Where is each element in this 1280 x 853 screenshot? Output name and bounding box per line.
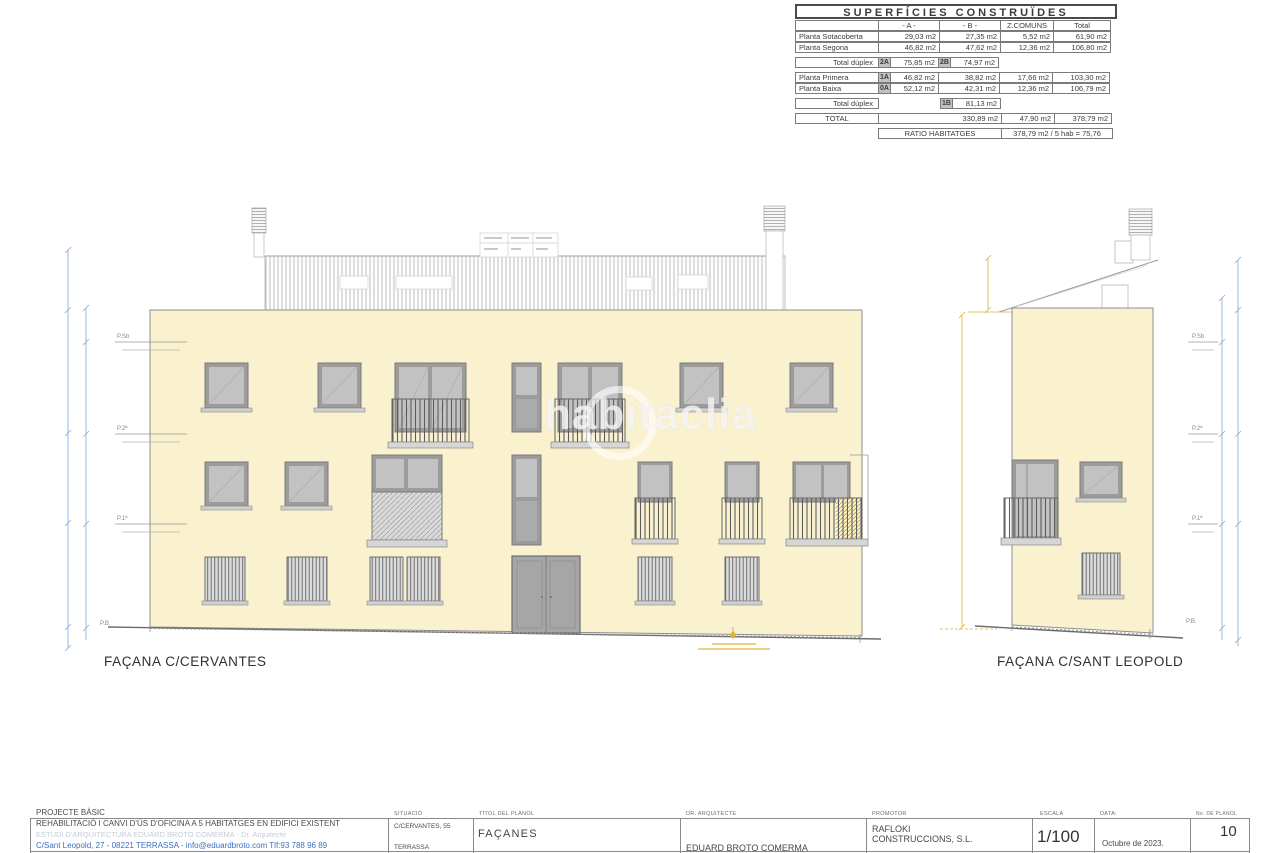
studio-line: ESTUDI D'ARQUITECTURA EDUARD BROTO COMER… — [36, 830, 286, 839]
entrance-door — [512, 556, 580, 633]
barred-window — [202, 557, 248, 605]
cell: Planta Sotacoberta — [795, 31, 879, 42]
cervantes-caption: FAÇANA C/CERVANTES — [104, 654, 267, 669]
table-row: RATIO HABITATGES 378,79 m2 / 5 hab = 75,… — [795, 128, 1117, 139]
cell: 47,62 m2 — [939, 42, 1001, 53]
cell: 103,30 m2 — [1052, 72, 1110, 83]
cell: - B - — [939, 20, 1001, 31]
balcony-door — [512, 363, 541, 432]
table-row: Planta Baixa 0A 52,12 m2 42,31 m2 12,36 … — [795, 83, 1117, 94]
escala-label: ESCALA — [1040, 811, 1064, 817]
surface-table-title: SUPERFÍCIES CONSTRUÏDES — [795, 4, 1117, 19]
table-row: Planta Segona 46,82 m2 47,62 m2 12,36 m2… — [795, 42, 1117, 53]
roof-step — [1115, 241, 1133, 263]
window — [1076, 462, 1126, 502]
cell: 38,82 m2 — [938, 72, 1000, 83]
dimension-lines-left — [65, 247, 89, 651]
level-markers-right: P.Sb P.2ª P.1ª P.B. — [1186, 334, 1218, 625]
cell: Total dúplex — [795, 98, 879, 109]
window-with-shutter — [367, 455, 447, 547]
cell: 330,89 m2 — [878, 113, 1002, 124]
balcony-window — [632, 462, 678, 544]
level-label: P.1ª — [117, 515, 128, 522]
contact-line: C/Sant Leopold, 27 - 08221 TERRASSA - in… — [36, 841, 327, 850]
cell: 29,03 m2 — [878, 31, 940, 42]
project-title: REHABILITACIÓ I CANVI D'ÚS D'OFICINA A 5… — [36, 819, 340, 828]
situacio-city: TERRASSA — [394, 844, 429, 851]
cell: 46,82 m2 — [878, 42, 940, 53]
balcony-door — [1001, 460, 1061, 545]
roof-legend-box — [480, 233, 558, 257]
cell: 42,31 m2 — [938, 83, 1000, 94]
surface-table: SUPERFÍCIES CONSTRUÏDES - A - - B - Z.CO… — [795, 4, 1117, 139]
balcony-window — [719, 462, 765, 544]
table-row: Total dúplex 2A 75,85 m2 2B 74,97 m2 — [795, 57, 1117, 68]
cell: Total dúplex — [795, 57, 879, 68]
promotor-value: RAFLOKI CONSTRUCCIONS, S.L. — [872, 824, 992, 844]
window — [201, 363, 252, 412]
level-label: P.1ª — [1192, 515, 1203, 522]
planol-label: No. DE PLÀNOL — [1196, 811, 1237, 817]
cell: 81,13 m2 — [952, 98, 1001, 109]
cell: 12,36 m2 — [1000, 42, 1054, 53]
cell: 378,79 m2 — [1054, 113, 1112, 124]
cell: TOTAL — [795, 113, 879, 124]
cell: 46,82 m2 — [890, 72, 939, 83]
cervantes-facade: P.Sb P.2ª P.1ª P.B. — [65, 206, 881, 651]
barred-window — [635, 557, 675, 605]
arquitecte-value: EDUARD BROTO COMERMA — [686, 843, 808, 853]
cell: Planta Baixa — [795, 83, 879, 94]
planol-value: 10 — [1220, 823, 1237, 840]
sant-leopold-caption: FAÇANA C/SANT LEOPOLD — [997, 654, 1183, 669]
window — [201, 462, 252, 510]
project-type: PROJECTE BÀSIC — [36, 808, 105, 817]
plan-sheet: P.Sb P.2ª P.1ª P.B. — [0, 0, 1280, 853]
table-row: Planta Primera 1A 46,82 m2 38,82 m2 17,6… — [795, 72, 1117, 83]
data-value: Octubre de 2023. — [1102, 839, 1164, 848]
window — [314, 363, 365, 412]
level-label: P.2ª — [1192, 425, 1203, 432]
spacer — [879, 98, 941, 109]
titol-value: FAÇANES — [478, 828, 538, 840]
level-label: P.B. — [100, 621, 111, 627]
level-label: P.Sb — [1192, 334, 1205, 340]
cell: Total — [1053, 20, 1111, 31]
chimney — [1129, 209, 1152, 260]
cell: Planta Segona — [795, 42, 879, 53]
chimney — [252, 208, 266, 257]
titol-label: TÍTOL DEL PLÀNOL — [479, 811, 534, 817]
table-row: TOTAL 330,89 m2 47,90 m2 378,79 m2 — [795, 113, 1117, 124]
cell: 12,36 m2 — [999, 83, 1053, 94]
cell: 106,79 m2 — [1052, 83, 1110, 94]
escala-value: 1/100 — [1037, 827, 1080, 847]
cell: 27,35 m2 — [939, 31, 1001, 42]
roof-band — [265, 256, 785, 310]
level-label: P.2ª — [117, 425, 128, 432]
barred-window — [1078, 553, 1124, 599]
level-label: P.B. — [1186, 619, 1197, 625]
barred-window — [284, 557, 330, 605]
situacio-value: C/CERVANTES, 55 — [394, 823, 450, 830]
cell: - A - — [878, 20, 940, 31]
cell: 75,85 m2 — [890, 57, 939, 68]
situacio-label: SITUACIÓ — [394, 811, 422, 817]
cell: 52,12 m2 — [890, 83, 939, 94]
cell: 74,97 m2 — [950, 57, 999, 68]
cell: 17,66 m2 — [999, 72, 1053, 83]
cell: 378,79 m2 / 5 hab = 75,76 — [1001, 128, 1113, 139]
balcony-door — [512, 455, 541, 545]
table-row: Planta Sotacoberta 29,03 m2 27,35 m2 5,5… — [795, 31, 1117, 42]
sant-leopold-facade: P.Sb P.2ª P.1ª P.B. — [940, 209, 1241, 646]
cell: 61,90 m2 — [1053, 31, 1111, 42]
cell: Planta Primera — [795, 72, 879, 83]
table-row: Total dúplex 1B 81,13 m2 — [795, 98, 1117, 109]
dimension-lines-right — [1219, 257, 1241, 646]
data-label: DATA: — [1100, 811, 1117, 817]
arquitecte-label: DR. ARQUITECTE — [686, 811, 736, 817]
spacer — [795, 128, 879, 139]
cell: 5,52 m2 — [1000, 31, 1054, 42]
chimney — [764, 206, 785, 310]
cell — [795, 20, 879, 31]
cell: RATIO HABITATGES — [878, 128, 1002, 139]
cell: 47,90 m2 — [1001, 113, 1055, 124]
window — [676, 363, 727, 412]
cell: 106,80 m2 — [1053, 42, 1111, 53]
level-label: P.Sb — [117, 334, 130, 340]
window — [786, 363, 837, 412]
table-header-row: - A - - B - Z.COMUNS Total — [795, 20, 1117, 31]
balcony-window — [551, 363, 629, 448]
window — [281, 462, 332, 510]
cell: Z.COMUNS — [1000, 20, 1054, 31]
promotor-label: PROMOTOR — [872, 811, 907, 817]
roof-step — [1102, 285, 1128, 308]
barred-window — [722, 557, 762, 605]
balcony-window — [388, 363, 473, 448]
